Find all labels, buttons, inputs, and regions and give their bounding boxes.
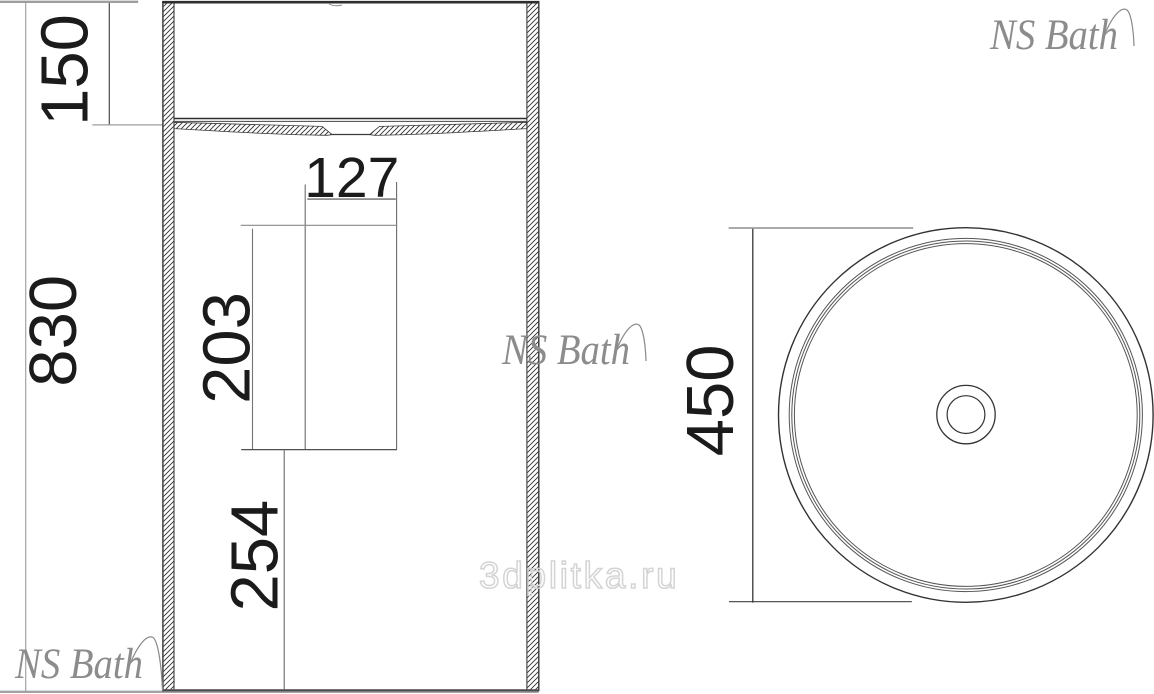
svg-text:203: 203 <box>190 292 265 404</box>
svg-text:450: 450 <box>673 345 748 457</box>
svg-text:3dplitka.ru: 3dplitka.ru <box>479 555 679 596</box>
svg-text:150: 150 <box>27 14 102 126</box>
svg-text:NS Bath: NS Bath <box>501 327 630 374</box>
svg-text:NS Bath: NS Bath <box>989 12 1118 59</box>
svg-text:NS Bath: NS Bath <box>14 641 143 688</box>
svg-text:254: 254 <box>218 500 293 612</box>
svg-text:127: 127 <box>304 146 399 210</box>
svg-text:830: 830 <box>16 275 91 387</box>
